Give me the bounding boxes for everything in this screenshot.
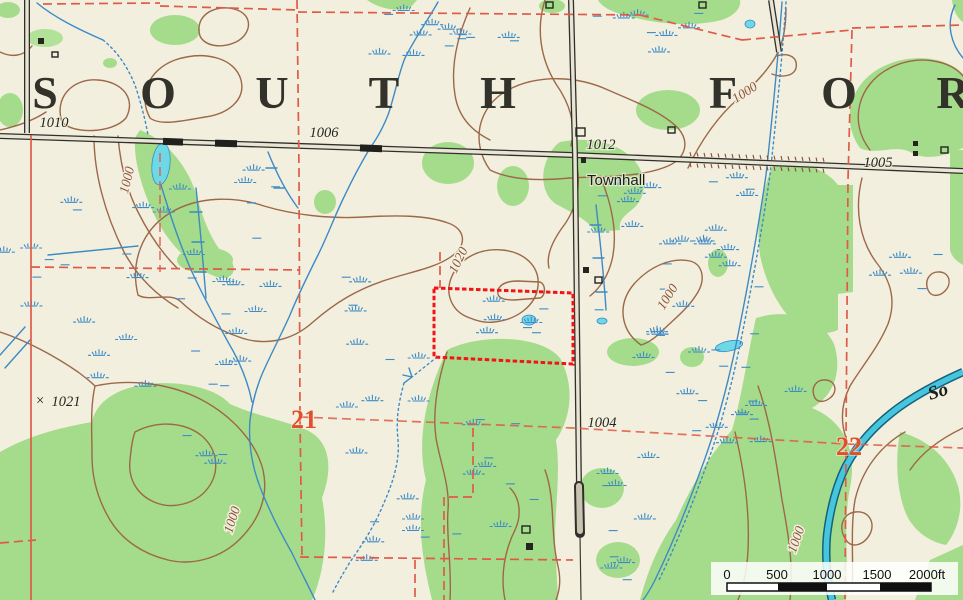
map-name-letter-0: S — [32, 67, 58, 118]
spot-elevation-3: 1005 — [864, 155, 893, 171]
spot-elevation-marker-5: × — [35, 393, 45, 409]
townhall-building — [581, 157, 586, 163]
scale-bar: 0500100015002000ft — [711, 562, 958, 595]
scale-tick-0: 0 — [723, 567, 730, 582]
spot-elevation-1: 1006 — [310, 125, 340, 141]
map-canvas: SOUTHFOR 100010201000100010001000 101010… — [0, 0, 963, 600]
map-name-letter-6: O — [821, 67, 857, 118]
section-number-22: 22 — [836, 432, 862, 461]
map-name-letter-7: R — [936, 67, 963, 118]
spot-elevation-4: 1004 — [588, 415, 617, 431]
townhall-label: Townhall — [587, 172, 645, 189]
map-name-letter-1: O — [140, 67, 176, 118]
scale-tick-1500: 1500 — [863, 567, 892, 582]
map-name-letter-2: U — [255, 67, 288, 118]
scale-tick-1000: 1000 — [813, 567, 842, 582]
map-name-letters: SOUTHFOR — [32, 67, 963, 118]
spot-elevation-0: 1010 — [40, 115, 70, 131]
map-name-letter-4: H — [480, 67, 516, 118]
section-number-21: 21 — [291, 405, 317, 434]
scale-tick-2000ft: 2000ft — [909, 567, 946, 582]
map-name-letter-3: T — [369, 67, 400, 118]
spot-elevation-2: 1012 — [587, 137, 616, 153]
spot-elevation-5: 1021 — [52, 394, 81, 410]
scale-tick-500: 500 — [766, 567, 788, 582]
topo-map-view[interactable]: SOUTHFOR 100010201000100010001000 101010… — [0, 0, 963, 600]
